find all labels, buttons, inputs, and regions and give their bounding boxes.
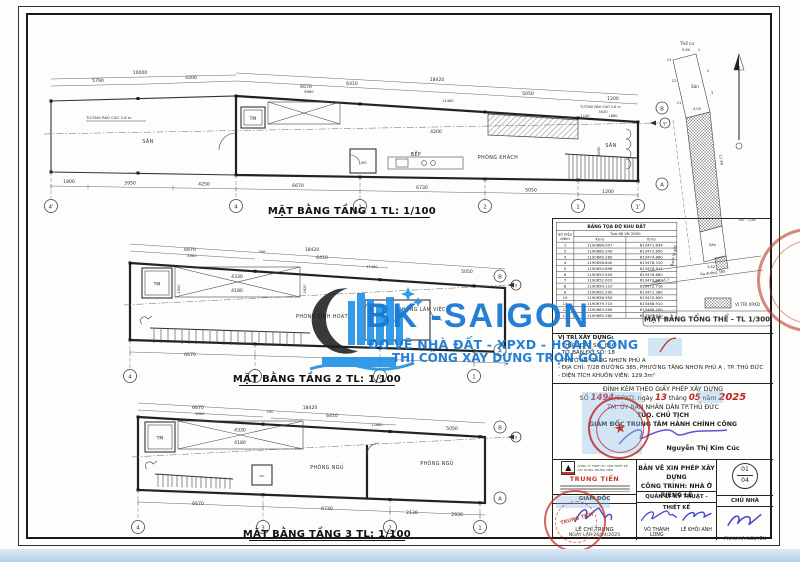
owner-signature [723,508,765,532]
legend: VỊ TRÍ XPXD [705,298,760,308]
design-signature [679,505,715,527]
svg-text:2: 2 [483,205,487,211]
svg-text:Y: Y [514,284,518,290]
dim-label: 2930 [451,512,463,518]
svg-text:2: 2 [707,69,709,73]
dim-label: 1880 [608,114,618,118]
svg-text:Y: Y [514,436,518,442]
dim-label: 6730 [321,506,333,512]
dim-label: 6960 [304,90,314,94]
legend-label: VỊ TRÍ XPXD [735,302,760,307]
dim-label: 5050 [525,188,537,194]
location-line: - DIỆN TÍCH KHUÔN VIÊN: 129.3m² [558,373,770,381]
building-outline [138,417,485,503]
watermark-subtitle: ĐO VẼ NHÀ ĐẤT - XPXD - HOÀN CÔNG [368,337,638,352]
room-label: PHÒNG KHÁCH [478,154,518,161]
seal-star-icon: ★ [593,402,647,456]
room-label: PHÒNG NGỦ [310,463,344,471]
dim-label: 6410 [316,255,328,261]
road: hẻm số 7 Ra đường 385 [641,256,763,286]
sheet-number: 01 [737,464,754,476]
svg-text:4': 4' [48,205,53,211]
room-label: PHÒNG NGỦ [420,459,454,467]
dim-label: 6410 [346,81,358,87]
boundary-line [673,120,691,262]
stairs [145,461,233,489]
svg-text:3: 3 [711,91,713,95]
watermark-title: BK -SAIGON [366,297,590,336]
company-line: XÂY DỰNG TRUNG TIẾN [577,468,627,472]
boundary-label: Ranh lộ giới [670,245,678,267]
divider [553,383,773,384]
owner-label: CHỦ NHÀ [717,496,773,507]
company-red-seal: TRUNG TIẾN [544,490,606,552]
svg-text:B: B [498,426,502,432]
room-label: SÂN [142,138,153,145]
elevator-label: TM [153,282,161,288]
svg-text:1: 1 [478,526,482,532]
owner-cell: 01 04 CHỦ NHÀ PHAN HÀ NGUYÊN [717,459,773,540]
watermark-subtitle: THI CÔNG XÂY DỰNG TRỌN GÓI [392,351,603,365]
dim-label: 5050 [446,426,458,432]
floor3-plan: TM 4330 4180 WC PHÒNG NGỦ PHÒNG NGỦ 18 [122,393,582,543]
dim-label: 4330 [231,274,243,280]
dim-label: 11480 [442,99,454,103]
dim-label: 5050 [461,269,473,275]
tech-signature [639,505,677,527]
svg-text:1: 1 [576,205,580,211]
dim-label: 11480 [366,265,378,269]
entry-door-arc [219,133,236,150]
svg-text:3.82: 3.82 [707,265,715,269]
dim-label: 290 [259,250,267,254]
svg-text:5.80: 5.80 [682,48,691,52]
dim-label: 5050 [522,91,534,97]
svg-text:11.49: 11.49 [718,154,723,165]
dim-label: 6670 [192,501,204,507]
dim-label: 6960 [195,412,205,416]
dim-label: 4330 [234,428,246,434]
dim-label: 4200 [430,129,442,135]
dim-label: 6410 [326,413,338,419]
dim-label: 6670 [292,183,304,189]
gate-scallops [626,129,631,169]
yard-label: Sân [709,242,717,247]
yard-label: Sân [691,84,699,89]
dim-label: 6670 [184,352,196,358]
dim-label: 6730 [416,185,428,191]
dim-label: 3020 [598,110,608,114]
owner-name: PHAN HÀ NGUYÊN [717,537,773,542]
elevator-box: TM [145,422,175,452]
void-cross: 4330 4180 [178,421,303,449]
house-number: NS : 7/28 [739,218,756,222]
svg-text:4: 4 [128,375,132,381]
doc-title: BẢN VẼ XIN PHÉP XÂY DỰNG [637,464,716,482]
official-name: Nguyễn Thị Kim Cúc [643,444,763,452]
stairs [565,154,638,181]
drawing-sheet: TM WC SÂN BẾP PHÒNG KHÁCH SÂN TƯỜNG RÀO … [0,0,800,562]
svg-text:11: 11 [677,101,682,105]
dim-label: 1200 [602,189,614,195]
col-header: Số hiệu điểm [556,230,573,242]
elevator-box: TM [241,107,265,128]
dim-label: 18420 [303,405,318,411]
dim-label: 6670 [192,405,204,411]
axis-line [132,437,512,457]
highlight-patch [697,391,723,403]
svg-text:4: 4 [234,205,238,211]
yard-outline [51,96,236,175]
design-name: LÊ KHÔI ANH [677,528,717,538]
wc-label: WC [259,474,264,478]
dim-label: 8250 [597,146,601,156]
svg-text:12: 12 [672,79,677,83]
dim-label: 2130 [406,510,418,516]
svg-text:1: 1 [472,375,476,381]
dim-label: 4200 [185,75,197,81]
structure-columns [50,95,640,183]
porch-hatch [715,256,728,270]
role-label: QUẢN LÝ KỸ THUẬT - THIẾT KẾ [637,492,716,503]
svg-text:B: B [498,275,502,281]
tech-name: VÕ THÀNH LONG [637,528,677,538]
sheet-total: 04 [741,476,749,486]
fence-note: TƯỜNG RÀO CAO 2.6 m [85,115,132,120]
dim-label: 4180 [234,440,246,446]
dim-label: 1140 [580,114,590,118]
dim-label: 10000 [133,70,148,76]
dim-label: 12680 [371,423,383,427]
company-logo-icon: ▲ [561,461,575,475]
dim-label: 1200 [607,96,619,102]
dim-label: 1500 [177,284,181,294]
svg-text:4: 4 [136,526,140,532]
dim-label: 290 [267,410,275,414]
wc-label: WC [361,161,368,165]
floor1-plan: TM WC SÂN BẾP PHÒNG KHÁCH SÂN TƯỜNG RÀO … [28,55,676,223]
dim-label: 18420 [305,247,320,253]
dim-label: 5790 [92,78,104,84]
svg-text:4.05: 4.05 [693,107,701,111]
svg-text:A: A [498,497,502,503]
scan-edge-strip [0,549,800,562]
building-footprint-hatch [686,112,722,232]
svg-text:13: 13 [667,58,672,62]
elevator-label: TM [156,436,164,442]
wc-room: WC [350,149,376,173]
dim-label: 1800 [63,179,75,185]
site-plan-title: MẶT BẰNG TỔNG THỂ - TL 1/300 [644,314,770,324]
land-type-label: Thổ cư [679,41,694,46]
door-arc [367,443,379,455]
permit-day: 13 [655,393,667,403]
elevator-label: TM [249,116,257,122]
company-name: TRUNG TIẾN [570,475,620,483]
elevator-box: TM [142,268,172,298]
dim-label: 3950 [124,181,136,187]
room-label: SÂN [605,142,616,149]
dim-label: 4250 [198,182,210,188]
wc-room: WC [252,465,272,485]
pen-mark [658,336,678,354]
dim-label: 18420 [430,77,445,83]
document-cell: BẢN VẼ XIN PHÉP XÂY DỰNG CÔNG TRÌNH: NHÀ… [637,459,717,540]
north-arrow-icon [734,54,744,149]
kitchen-counter [388,157,463,169]
location-line: - ĐỊA CHỈ: 7/28 ĐƯỜNG 385, PHƯỜNG TĂNG N… [558,365,770,373]
dim-label: 4180 [231,288,243,294]
fence-note: TƯỜNG RÀO CAO 2.6 m [579,104,621,109]
plan-title: MẶT BẰNG TẦNG 1 TL: 1/100 [268,202,436,217]
sheet-number-badge: 01 04 [732,463,758,489]
dim-label: 6670 [184,247,196,253]
room-label: BẾP [411,150,421,158]
svg-text:1: 1 [698,48,700,52]
void-cross [268,102,340,124]
dim-label: 6960 [187,254,197,258]
